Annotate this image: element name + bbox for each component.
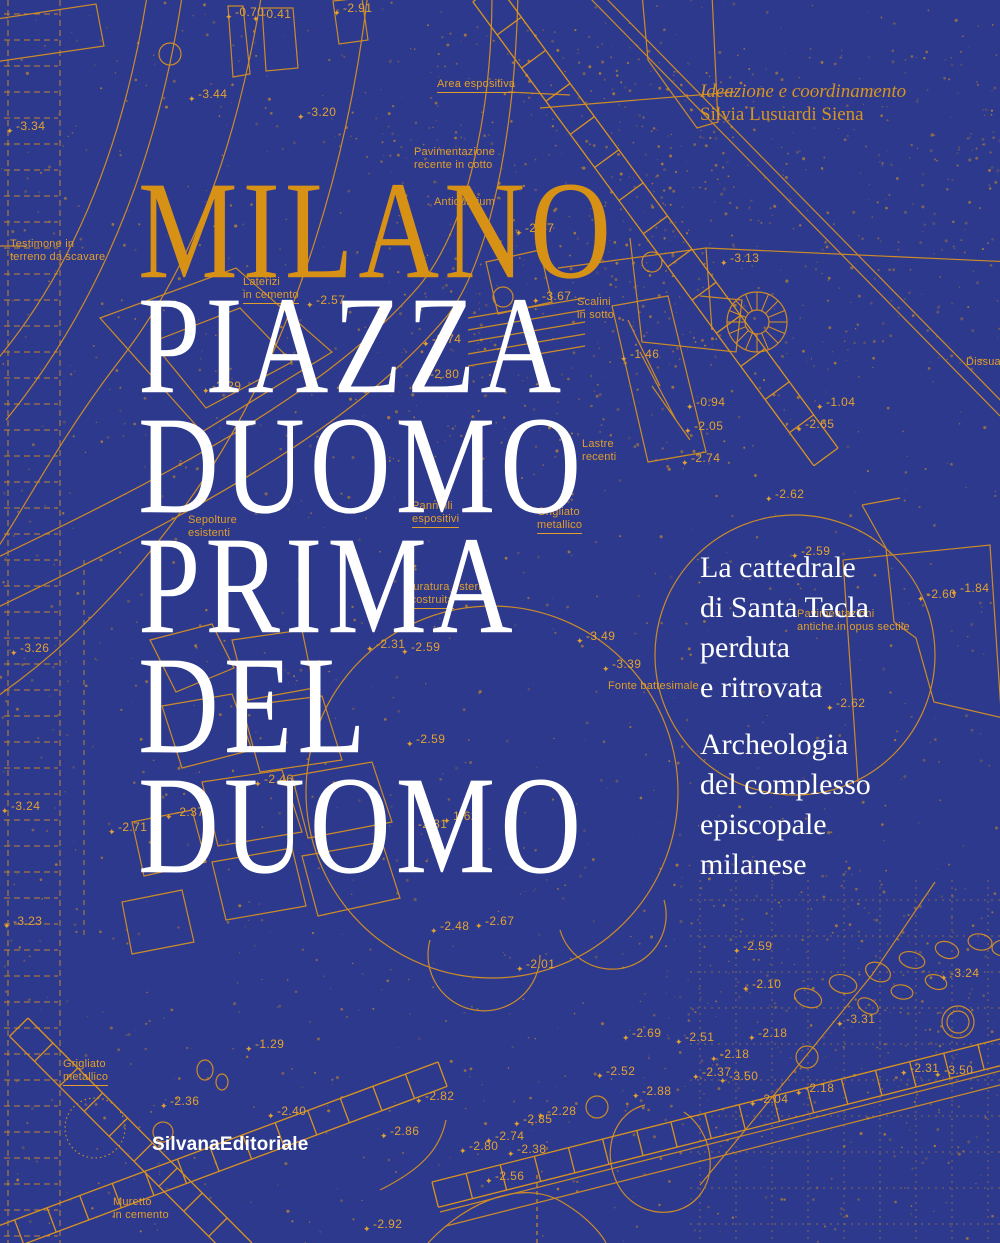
credits-block: Ideazione e coordinamento Silvia Lusuard…: [700, 80, 906, 126]
elevation-value: ✦-2.51: [675, 1031, 714, 1045]
subtitle-line: di Santa Tecla: [700, 588, 869, 628]
book-cover: Area espositivaPavimentazionerecente in …: [0, 0, 1000, 1243]
elevation-value: ✦-2.59: [733, 940, 772, 954]
elevation-marker-star-icon: ✦: [188, 94, 196, 106]
title-line-6: DUOMO: [138, 756, 586, 896]
elevation-value: ✦-3.39: [602, 658, 641, 672]
subtitle-line: perduta: [700, 628, 869, 668]
elevation-marker-star-icon: ✦: [380, 1131, 388, 1143]
elevation-value: ✦-0.94: [686, 396, 725, 410]
elevation-marker-star-icon: ✦: [686, 402, 694, 414]
elevation-marker-star-icon: ✦: [795, 1088, 803, 1100]
elevation-value: ✦-2.69: [622, 1027, 661, 1041]
plan-label: Testimone interreno da scavare: [10, 238, 105, 264]
elevation-marker-star-icon: ✦: [816, 402, 824, 414]
elevation-value: ✦-2.01: [516, 958, 555, 972]
elevation-marker-star-icon: ✦: [10, 648, 18, 660]
elevation-value: ✦-3.24: [1, 800, 40, 814]
elevation-marker-star-icon: ✦: [720, 258, 728, 270]
elevation-marker-star-icon: ✦: [675, 1037, 683, 1049]
elevation-marker-star-icon: ✦: [632, 1091, 640, 1103]
elevation-value: ✦-0.41: [252, 8, 291, 22]
plan-label: Murettoin cemento: [113, 1196, 169, 1222]
elevation-marker-star-icon: ✦: [596, 1071, 604, 1083]
elevation-value: ✦-3.50: [934, 1064, 973, 1078]
elevation-marker-star-icon: ✦: [692, 1072, 700, 1084]
elevation-value: ✦-2.82: [415, 1090, 454, 1104]
elevation-marker-star-icon: ✦: [684, 426, 692, 438]
elevation-marker-star-icon: ✦: [297, 112, 305, 124]
elevation-marker-star-icon: ✦: [245, 1044, 253, 1056]
credits-role: Ideazione e coordinamento: [700, 80, 906, 103]
plan-label: Dissua: [966, 356, 1000, 369]
elevation-marker-star-icon: ✦: [733, 946, 741, 958]
elevation-marker-star-icon: ✦: [475, 921, 483, 933]
elevation-marker-star-icon: ✦: [622, 1033, 630, 1045]
elevation-value: ✦-2.36: [160, 1095, 199, 1109]
elevation-marker-star-icon: ✦: [748, 1033, 756, 1045]
elevation-marker-star-icon: ✦: [507, 1149, 515, 1161]
elevation-value: ✦-2.85: [513, 1113, 552, 1127]
elevation-value: ✦-3.20: [297, 106, 336, 120]
elevation-marker-star-icon: ✦: [602, 664, 610, 676]
elevation-marker-star-icon: ✦: [917, 594, 925, 606]
elevation-value: ✦-2.60: [917, 588, 956, 602]
elevation-value: ✦-3.23: [3, 915, 42, 929]
elevation-marker-star-icon: ✦: [795, 424, 803, 436]
credits-name: Silvia Lusuardi Siena: [700, 103, 906, 126]
subtitle-line: Archeologia: [700, 725, 871, 765]
elevation-marker-star-icon: ✦: [836, 1019, 844, 1031]
elevation-value: ✦-1.46: [620, 348, 659, 362]
elevation-marker-star-icon: ✦: [108, 827, 116, 839]
elevation-value: ✦-3.31: [836, 1013, 875, 1027]
elevation-marker-star-icon: ✦: [940, 973, 948, 985]
plan-label: Fonte battesimale: [608, 680, 699, 693]
elevation-value: ✦-2.38: [507, 1143, 546, 1157]
elevation-value: ✦-3.26: [10, 642, 49, 656]
elevation-marker-star-icon: ✦: [516, 964, 524, 976]
subtitle-line: milanese: [700, 845, 871, 885]
elevation-value: ✦-2.65: [795, 418, 834, 432]
elevation-marker-star-icon: ✦: [719, 1076, 727, 1088]
elevation-marker-star-icon: ✦: [430, 926, 438, 938]
publisher-logo: SilvanaEditoriale: [152, 1134, 309, 1156]
elevation-value: ✦-3.49: [576, 630, 615, 644]
elevation-value: ✦-3.50: [719, 1070, 758, 1084]
elevation-value: ✦-2.62: [765, 488, 804, 502]
subtitle-line: episcopale: [700, 805, 871, 845]
elevation-marker-star-icon: ✦: [749, 1099, 757, 1111]
elevation-marker-star-icon: ✦: [333, 8, 341, 20]
elevation-marker-star-icon: ✦: [459, 1146, 467, 1158]
elevation-value: ✦-1.29: [245, 1038, 284, 1052]
subtitle-line: La cattedrale: [700, 548, 869, 588]
plan-label: Lastrerecenti: [582, 438, 616, 464]
elevation-marker-star-icon: ✦: [252, 14, 260, 26]
elevation-value: ✦-2.10: [742, 978, 781, 992]
elevation-value: ✦-3.34: [6, 120, 45, 134]
subtitle-block-2: Archeologiadel complessoepiscopalemilane…: [700, 725, 871, 885]
elevation-value: ✦-2.86: [380, 1125, 419, 1139]
elevation-marker-star-icon: ✦: [485, 1176, 493, 1188]
elevation-value: ✦-2.18: [795, 1082, 834, 1096]
elevation-value: ✦-2.74: [681, 452, 720, 466]
elevation-marker-star-icon: ✦: [576, 636, 584, 648]
subtitle-line: del complesso: [700, 765, 871, 805]
elevation-value: ✦-2.56: [485, 1170, 524, 1184]
elevation-marker-star-icon: ✦: [681, 458, 689, 470]
elevation-marker-star-icon: ✦: [620, 354, 628, 366]
elevation-marker-star-icon: ✦: [160, 1101, 168, 1113]
elevation-marker-star-icon: ✦: [765, 494, 773, 506]
elevation-value: ✦-2.52: [596, 1065, 635, 1079]
elevation-marker-star-icon: ✦: [3, 921, 11, 933]
elevation-marker-star-icon: ✦: [900, 1068, 908, 1080]
elevation-value: ✦-2.67: [475, 915, 514, 929]
elevation-value: ✦-2.40: [267, 1105, 306, 1119]
elevation-marker-star-icon: ✦: [742, 984, 750, 996]
elevation-value: ✦-2.80: [459, 1140, 498, 1154]
elevation-value: ✦-1.04: [816, 396, 855, 410]
elevation-value: ✦-2.59: [406, 733, 445, 747]
elevation-value: ✦-3.24: [940, 967, 979, 981]
elevation-marker-star-icon: ✦: [934, 1070, 942, 1082]
elevation-value: ✦-2.88: [632, 1085, 671, 1099]
elevation-marker-star-icon: ✦: [6, 126, 14, 138]
elevation-marker-star-icon: ✦: [267, 1111, 275, 1123]
elevation-value: ✦-2.18: [748, 1027, 787, 1041]
elevation-value: ✦-2.05: [684, 420, 723, 434]
plan-label: Grigliatometallico: [63, 1058, 108, 1086]
elevation-marker-star-icon: ✦: [415, 1096, 423, 1108]
elevation-value: ✦-2.91: [333, 2, 372, 16]
elevation-value: ✦-3.13: [720, 252, 759, 266]
elevation-value: ✦-2.18: [710, 1048, 749, 1062]
elevation-marker-star-icon: ✦: [225, 12, 233, 24]
elevation-marker-star-icon: ✦: [1, 806, 9, 818]
elevation-value: ✦-2.04: [749, 1093, 788, 1107]
elevation-value: ✦-3.44: [188, 88, 227, 102]
plan-label: Area espositiva: [437, 78, 515, 93]
elevation-value: ✦-2.48: [430, 920, 469, 934]
elevation-value: ✦-2.92: [363, 1218, 402, 1232]
subtitle-line: e ritrovata: [700, 668, 869, 708]
elevation-marker-star-icon: ✦: [363, 1224, 371, 1236]
subtitle-block-1: La cattedraledi Santa Teclaperdutae ritr…: [700, 548, 869, 708]
